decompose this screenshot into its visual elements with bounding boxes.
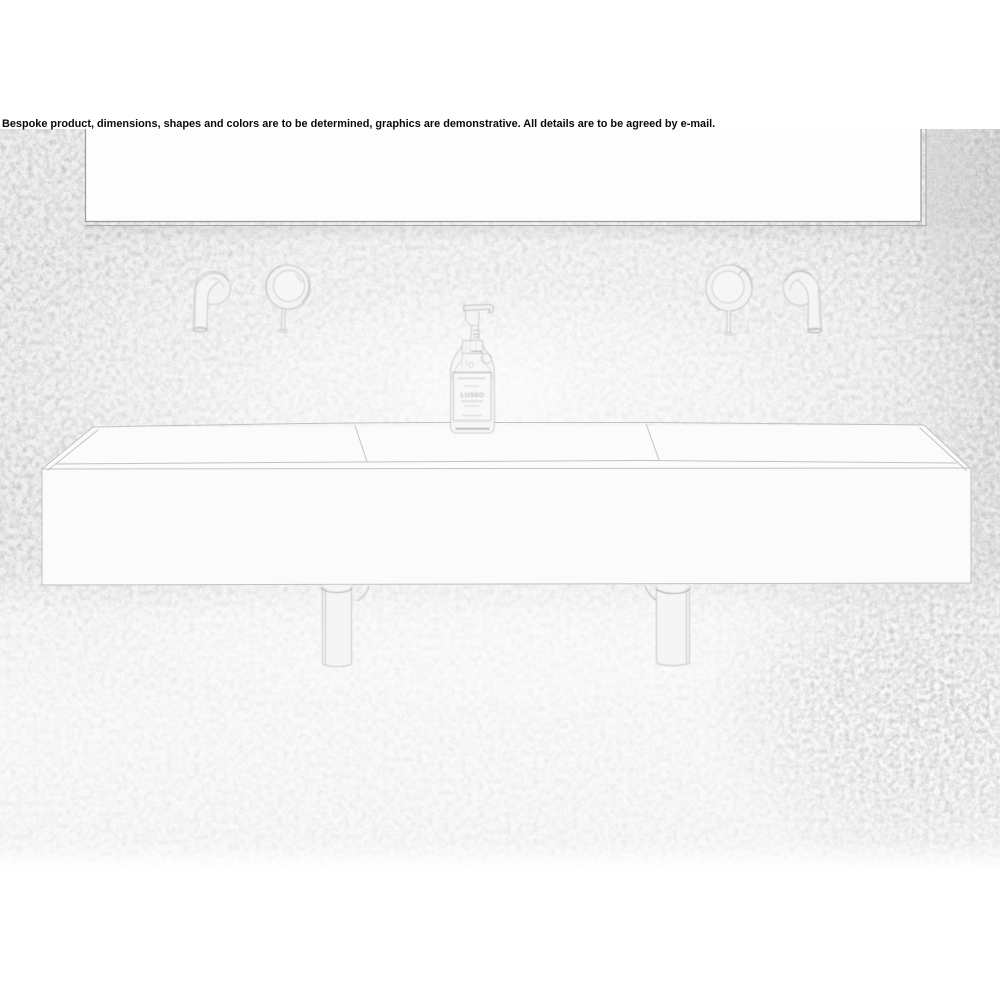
svg-text:LUSSO: LUSSO [461,392,485,399]
